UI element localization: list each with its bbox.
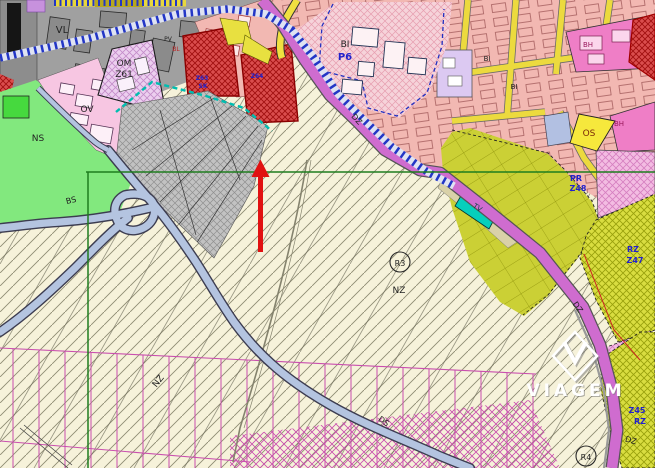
label-vl: VL — [56, 25, 69, 36]
label-bi-3: BI — [511, 83, 518, 91]
label-z61: Z61 — [115, 70, 133, 80]
khaki-block — [95, 0, 143, 7]
label-ov: OV — [80, 105, 94, 115]
zone-blue-block — [544, 112, 572, 146]
label-z48: Z48 — [570, 184, 587, 193]
label-ns: NS — [32, 134, 45, 144]
label-r3: R3 — [395, 259, 406, 268]
label-om: OM — [117, 59, 132, 69]
label-rz-2: RZ — [634, 417, 646, 426]
label-sk: SK — [199, 83, 208, 90]
label-bi-2: BI — [484, 55, 491, 63]
label-p6: P6 — [338, 52, 352, 63]
label-rz-1: RZ — [627, 245, 639, 254]
label-pv: PV — [164, 36, 173, 43]
label-bh-1: BH — [583, 41, 593, 49]
label-r4: R4 — [581, 453, 592, 462]
label-z63: Z63 — [196, 75, 209, 82]
label-nz-1: NZ — [393, 286, 406, 296]
label-z45: Z45 — [629, 406, 646, 415]
zoning-map-canvas: VL OV OM Z61 NS BS BI P6 DZ BI BI BH BH … — [0, 0, 655, 468]
label-z64: Z64 — [251, 73, 264, 80]
zoning-map: VL OV OM Z61 NS BS BI P6 DZ BI BI BH BH … — [0, 0, 655, 468]
label-z47: Z47 — [627, 256, 644, 265]
label-bl: BL — [172, 46, 180, 53]
label-bh-2: BH — [614, 120, 624, 128]
small-purple-block — [27, 0, 45, 12]
black-building — [7, 3, 21, 57]
bright-green-parcel — [3, 96, 29, 118]
watermark-text: VIAGEM — [526, 381, 625, 401]
label-pr: PR — [570, 174, 582, 183]
label-os: OS — [583, 129, 596, 139]
label-bi-main: BI — [341, 40, 350, 50]
